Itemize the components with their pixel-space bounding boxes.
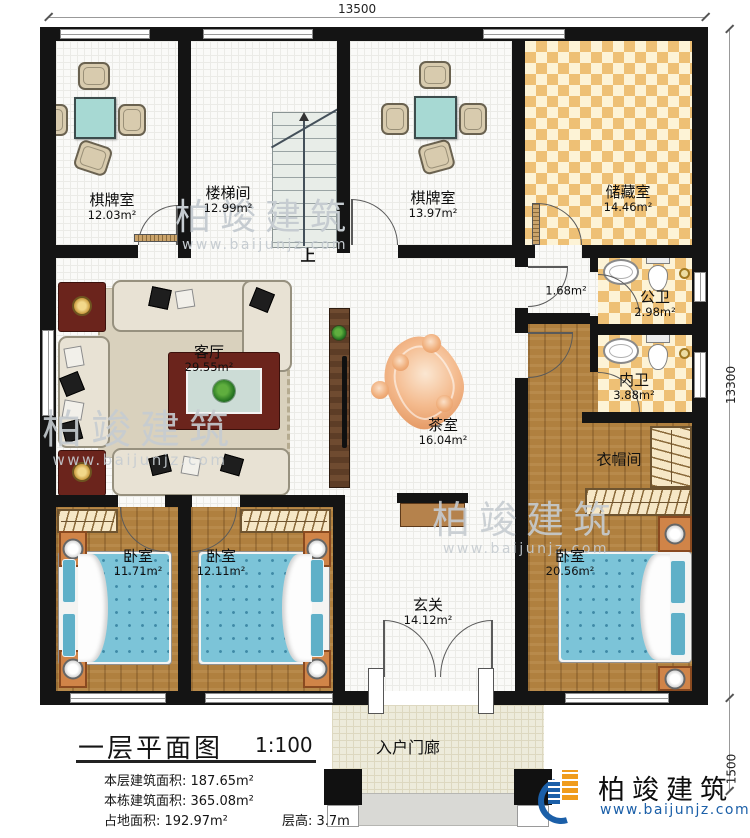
chair <box>419 61 451 89</box>
wall-segment <box>515 308 528 333</box>
bed-pillow <box>670 560 686 604</box>
wall-segment <box>398 245 525 258</box>
floor-drain-icon <box>679 268 690 279</box>
room-label-cloakroom: 衣帽间 <box>596 451 641 468</box>
wardrobe <box>585 488 692 516</box>
window-icon <box>483 29 565 39</box>
throw-pillow <box>63 346 84 369</box>
brand-url: www.baijunjz.com <box>600 802 750 818</box>
stair-up-line <box>303 120 305 246</box>
stair-up-label: 上 <box>300 247 315 264</box>
dimension-line <box>729 30 730 698</box>
wall-segment <box>515 378 528 705</box>
door-panel <box>532 203 540 245</box>
chair <box>78 62 110 90</box>
room-label-porch: 入户门廊 <box>376 739 440 757</box>
title-line-2: 本栋建筑面积: 365.08m² <box>104 790 254 809</box>
tea-pebble <box>436 395 453 412</box>
room-label-storage: 储藏室14.46m² <box>604 184 653 214</box>
window-icon <box>42 330 54 416</box>
title-line-4: 层高: 3.7m <box>282 810 350 829</box>
window-icon <box>70 693 166 703</box>
room-label-master-bedroom: 卧室20.56m² <box>546 548 595 578</box>
sofa-bottom <box>112 448 290 496</box>
wardrobe <box>57 509 118 533</box>
plant-icon <box>332 326 346 340</box>
bed-pillow <box>62 559 76 603</box>
toilet-tank-icon <box>646 334 670 343</box>
wall-segment <box>40 495 118 507</box>
brand-building-icon <box>548 780 560 804</box>
throw-pillow <box>175 289 196 310</box>
wall-segment <box>178 41 191 245</box>
wall-segment <box>528 313 590 324</box>
wall-segment <box>590 324 692 335</box>
door-leaf <box>528 332 573 334</box>
room-label-bedroom1: 卧室11.71m² <box>114 548 163 578</box>
room-label-qipai1: 棋牌室12.03m² <box>88 192 137 222</box>
table-lamp-icon <box>72 462 92 482</box>
room-label-bedroom2: 卧室12.11m² <box>197 548 246 578</box>
stair-arrow-icon <box>299 112 309 121</box>
brand-building-icon <box>562 770 578 800</box>
room-label-tea: 茶室16.04m² <box>419 417 468 447</box>
dimension-line <box>48 17 706 18</box>
room-label-public-bath: 公卫2.98m² <box>634 289 675 319</box>
wardrobe <box>240 509 331 533</box>
room-label-qipai2: 棋牌室13.97m² <box>409 190 458 220</box>
closet-shelving <box>650 426 692 488</box>
title-line-1: 本层建筑面积: 187.65m² <box>104 770 254 789</box>
tea-pebble <box>422 334 441 353</box>
floor-drain-icon <box>679 348 690 359</box>
plant-icon <box>213 380 235 402</box>
door-frame <box>478 668 494 714</box>
window-icon <box>205 693 333 703</box>
throw-pillow <box>62 399 85 420</box>
tv-icon <box>342 356 347 448</box>
tea-pebble <box>371 381 389 399</box>
bed-sheet <box>282 554 312 662</box>
wall-segment <box>397 493 468 503</box>
room-label-corridor: 1.68m² <box>545 284 586 297</box>
nightstand <box>658 516 692 552</box>
chair <box>459 103 487 135</box>
window-icon <box>694 272 706 302</box>
window-icon <box>60 29 150 39</box>
wall-segment <box>333 495 345 705</box>
title-underline <box>76 760 316 763</box>
wall-segment <box>40 245 138 258</box>
mahjong-table <box>74 97 116 139</box>
wall-segment <box>515 245 528 267</box>
bed-sheet <box>640 554 670 660</box>
chair <box>118 104 146 136</box>
room-label-inner-bath: 内卫3.88m² <box>613 372 654 402</box>
bed-pillow <box>670 612 686 656</box>
dimension-top: 13500 <box>338 2 376 16</box>
wall-segment <box>582 412 692 423</box>
chair <box>381 103 409 135</box>
door-leaf <box>351 199 353 245</box>
porch-pillar <box>324 769 362 805</box>
room-label-stairwell: 楼梯间12.99m² <box>204 185 253 215</box>
dimension-right: 13300 <box>724 366 738 404</box>
door-leaf <box>528 266 568 268</box>
bed-pillow <box>310 613 324 657</box>
console-table <box>400 503 465 527</box>
wall-segment <box>582 245 692 258</box>
floor-plan: 棋牌室12.03m² 楼梯间12.99m² 上 棋牌室13.97m² 储藏室14… <box>0 0 750 838</box>
room-label-living: 客厅29.55m² <box>185 344 234 374</box>
wall-segment <box>590 258 598 272</box>
throw-pillow <box>181 456 202 477</box>
plan-scale: 1:100 <box>255 733 313 757</box>
mahjong-table <box>414 96 457 139</box>
nightstand <box>658 666 692 691</box>
bed-pillow <box>310 559 324 603</box>
table-lamp-icon <box>72 296 92 316</box>
window-icon <box>203 29 313 39</box>
window-icon <box>565 693 669 703</box>
wall-segment <box>512 41 525 245</box>
throw-pillow <box>148 286 172 310</box>
porch-step <box>350 793 526 826</box>
window-icon <box>694 352 706 398</box>
wall-segment <box>178 495 191 705</box>
sink-icon <box>603 338 639 364</box>
door-panel <box>134 234 178 242</box>
bed-pillow <box>62 613 76 657</box>
room-label-foyer: 玄关14.12m² <box>404 597 453 627</box>
title-line-3: 占地面积: 192.97m² <box>104 810 228 829</box>
wall-segment <box>240 495 345 507</box>
wall-segment <box>178 245 191 258</box>
door-frame <box>368 668 384 714</box>
tea-pebble <box>392 354 409 371</box>
wall-segment <box>337 41 350 253</box>
